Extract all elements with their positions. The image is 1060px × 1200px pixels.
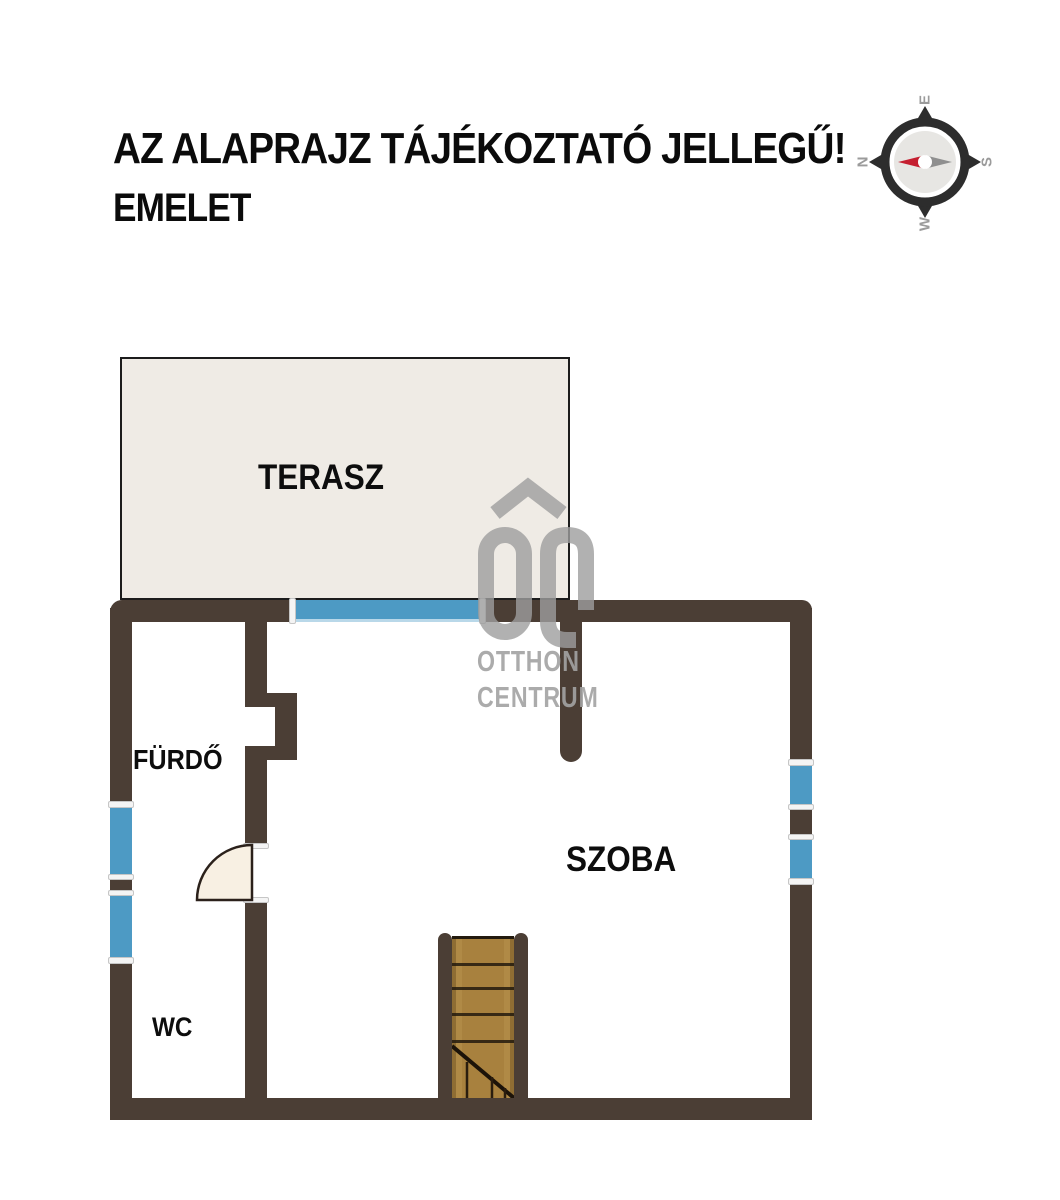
room-label-furdo: FÜRDŐ [133,744,223,776]
window-left-lower [110,896,132,957]
compass-icon: N E S W [855,92,995,232]
otthon-centrum-logo-icon [460,470,610,660]
stairs-rail-right [514,933,528,1098]
window-sill [108,957,134,964]
terrace-door-jamb-left [289,598,296,624]
partition-bath-lower [245,903,267,1100]
window-sill [108,874,134,880]
wall-bottom [110,1098,812,1120]
partition-bath-mid [245,746,267,845]
window-mullion-right [790,810,812,834]
compass-label-n: N [855,157,872,168]
window-sill [108,801,134,808]
stairs-break-line [452,936,514,1098]
room-label-terasz: TERASZ [258,458,384,498]
window-left-upper [110,808,132,874]
watermark-line2: CENTRUM [477,682,599,715]
compass-label-e: E [917,95,934,105]
window-mullion-left [110,880,132,890]
window-sill [788,878,814,885]
window-sill [788,804,814,810]
window-right-upper [790,766,812,804]
room-label-szoba: SZOBA [566,840,676,880]
room-label-wc: WC [152,1012,192,1043]
compass-label-w: W [917,216,934,231]
floor-title: EMELET [113,186,250,231]
terrace-door-window [296,600,479,622]
watermark-line1: OTTHON [477,646,580,679]
floorplan-page: { "title": { "line1": "AZ ALAPRAJZ TÁJÉK… [0,0,1060,1200]
disclaimer-title: AZ ALAPRAJZ TÁJÉKOZTATÓ JELLEGŰ! [113,124,846,174]
window-sill [788,759,814,766]
window-right-lower [790,840,812,878]
door-swing-icon [190,838,260,908]
window-sill [108,890,134,896]
stairs-rail-left [438,933,452,1098]
window-sill [788,834,814,840]
compass-label-s: S [979,157,996,167]
